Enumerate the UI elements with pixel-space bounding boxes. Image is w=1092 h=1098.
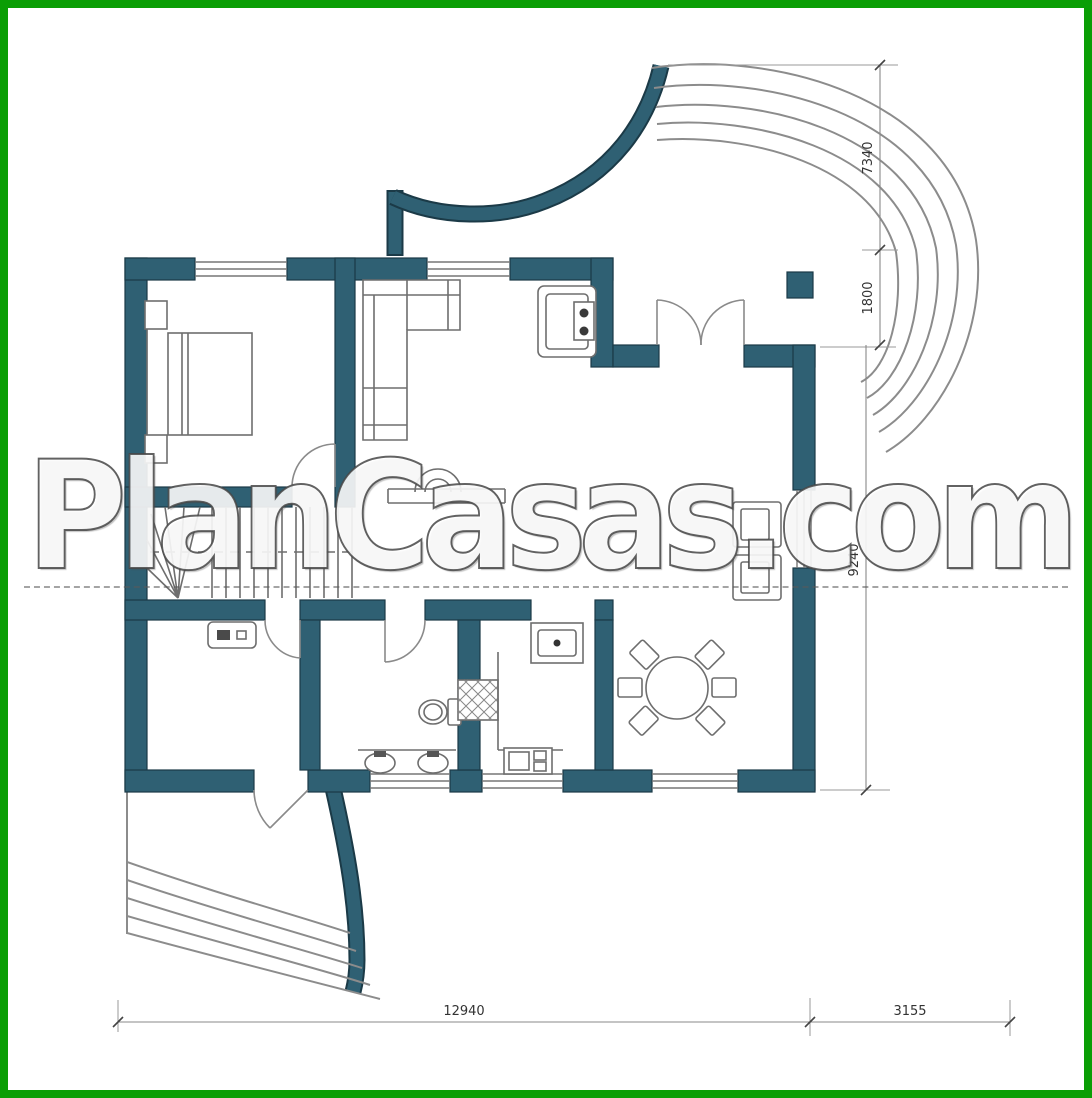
wall-bottom-e (738, 770, 815, 792)
wall-top-a (125, 258, 195, 280)
windows (195, 262, 811, 788)
dining-chair (712, 678, 736, 697)
wall-bottom-c (450, 770, 482, 792)
wall-kitchen-dining-divider (595, 620, 613, 770)
dim-bottom-main: 12940 (443, 1004, 484, 1019)
wall-right-lower (793, 568, 815, 790)
dining-chair (618, 678, 642, 697)
dim-right-lower: 9240 (847, 543, 862, 576)
wall-right-upper (793, 345, 815, 490)
window-kitchen-bottom (482, 774, 563, 788)
window-bedroom-top (195, 262, 287, 276)
stove (504, 748, 552, 774)
window-right-wall (797, 490, 811, 568)
staircase (147, 507, 354, 598)
duct-shaft (458, 680, 498, 720)
wall-hall-c (425, 600, 531, 620)
dim-bottom-right: 3155 (893, 1004, 926, 1019)
dim-right-mid: 1800 (861, 281, 876, 314)
wall-hall-a (125, 600, 265, 620)
doors (254, 300, 744, 828)
floor-plan-drawing: 12940 3155 7340 1800 9240 (0, 0, 1092, 1098)
wall-bedroom-bottom (125, 487, 292, 507)
wall-entry-left (613, 345, 659, 367)
wall-bottom-b (308, 770, 370, 792)
wall-top-b (287, 258, 427, 280)
dimension-lines: 12940 3155 7340 1800 9240 (113, 60, 1015, 1036)
door-study (265, 620, 300, 658)
door-bathroom (385, 620, 425, 662)
kitchen-sink (531, 623, 583, 663)
wall-bottom-a (125, 770, 254, 792)
toilet (419, 699, 461, 725)
column (787, 272, 813, 298)
nightstand (145, 301, 167, 329)
wall-bottom-d (563, 770, 652, 792)
kitchen-fixtures (498, 623, 583, 774)
floor-plan-page: 12940 3155 7340 1800 9240 PlanCasas.com (0, 0, 1092, 1098)
terrace-top-right (393, 64, 978, 452)
entrance-double-door (657, 300, 744, 345)
window-bathroom-bottom (370, 774, 450, 788)
door-exterior-bottom (254, 790, 308, 828)
wall-hall-b (300, 600, 385, 620)
wall-hall-d (595, 600, 613, 620)
window-living-top (427, 262, 510, 276)
wall-bedroom-divider (335, 258, 355, 507)
window-dining-bottom (652, 774, 738, 788)
curved-steps-bottom (127, 862, 380, 999)
kitchen-counter (498, 652, 563, 750)
bed (145, 301, 252, 463)
dining-set (618, 639, 736, 735)
fireplace (538, 286, 596, 357)
dim-right-top: 7340 (861, 141, 876, 174)
desk-and-chair (388, 469, 505, 503)
wall-left (125, 258, 147, 790)
door-bedroom (292, 444, 335, 487)
dining-table (646, 657, 708, 719)
terrace-bottom-left (127, 788, 380, 999)
nightstand (145, 435, 167, 463)
double-sink (358, 750, 456, 773)
watermark-dash-line (24, 586, 1068, 588)
furniture (145, 280, 781, 774)
electrical-panel (208, 622, 256, 648)
corner-sofa (363, 280, 460, 440)
wall-study-bath-divider (300, 620, 320, 770)
